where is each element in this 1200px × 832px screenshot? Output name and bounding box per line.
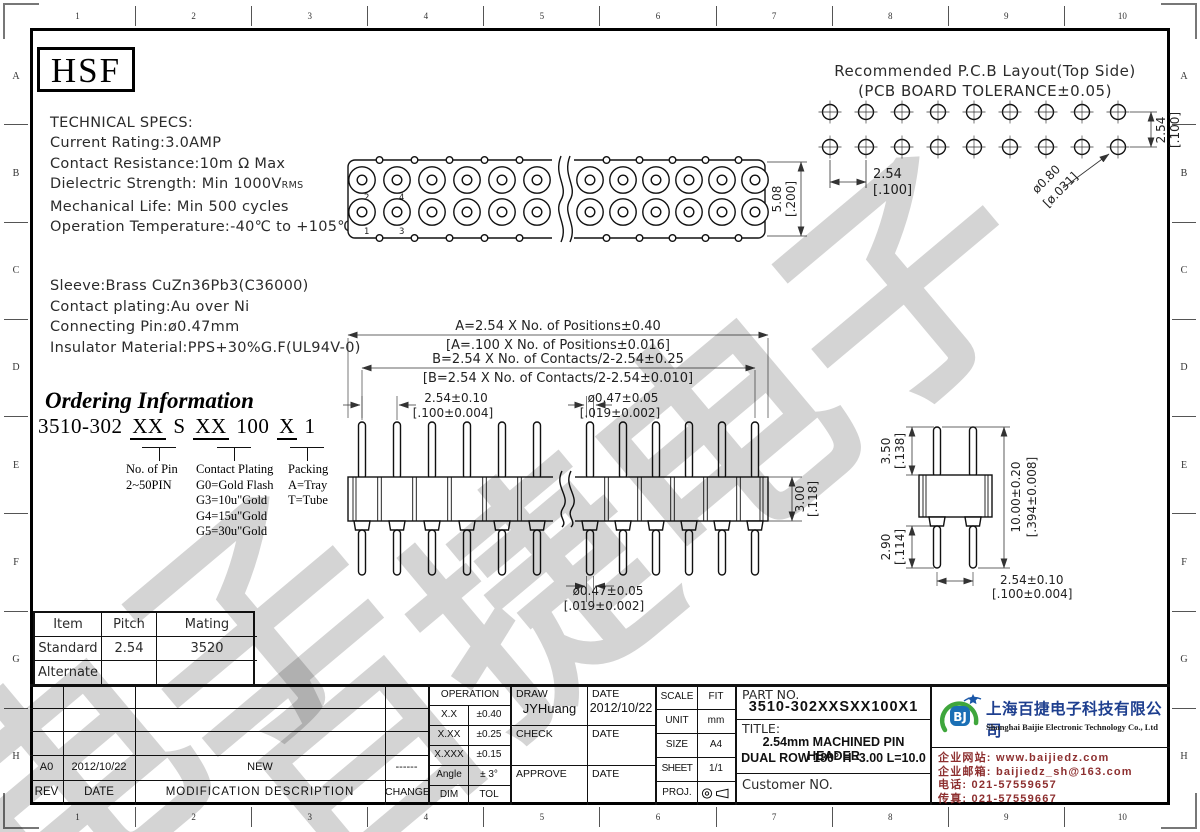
code-suffix: 1 bbox=[305, 414, 316, 438]
grid-line bbox=[512, 725, 655, 726]
bottom-pin-in: [.114] bbox=[893, 529, 907, 565]
note-line: G4=15u"Gold bbox=[196, 509, 274, 525]
ruler-row: H bbox=[4, 709, 28, 805]
ruler-col: 1 bbox=[20, 6, 136, 26]
body-height-mm: 3.00 bbox=[793, 486, 807, 513]
pcb-row-in: [.100] bbox=[1168, 112, 1182, 148]
material-line: Contact plating:Au over Ni bbox=[50, 297, 361, 318]
rev-label: REV bbox=[30, 780, 63, 805]
sv-pitch-in: [.100±0.004] bbox=[992, 587, 1073, 600]
ruler-col: 7 bbox=[717, 807, 833, 827]
grid-line bbox=[30, 708, 428, 709]
mating-cell bbox=[157, 661, 257, 684]
body-height-in: [.118] bbox=[806, 481, 820, 517]
approve-label: APPROVE bbox=[516, 768, 567, 780]
tol-value: ± 3° bbox=[468, 765, 510, 785]
ordering-title: Ordering Information bbox=[45, 388, 254, 414]
grid-line bbox=[932, 747, 1170, 748]
code-s: S bbox=[173, 414, 185, 438]
packing-note: Packing A=Tray T=Tube bbox=[288, 462, 328, 509]
connector-line bbox=[234, 447, 235, 461]
technical-specs: TECHNICAL SPECS: Current Rating:3.0AMP C… bbox=[50, 113, 354, 237]
unit-value: mm bbox=[697, 709, 735, 733]
materials-specs: Sleeve:Brass CuZn36Pb3(C36000) Contact p… bbox=[50, 276, 361, 358]
ruler-col: 6 bbox=[600, 6, 716, 26]
pin-number-4: 4 bbox=[399, 193, 404, 203]
code-prefix: 3510-302 bbox=[38, 414, 123, 438]
grid-line bbox=[737, 719, 930, 720]
ruler-row: F bbox=[4, 514, 28, 611]
tol-value: ±0.25 bbox=[468, 725, 510, 745]
mating-table: Item Pitch Mating Standard 2.54 3520 Alt… bbox=[33, 611, 255, 686]
top-pin-in: [.138] bbox=[893, 433, 907, 469]
sheet-label: SHEET bbox=[657, 757, 697, 781]
note-line: A=Tray bbox=[288, 478, 328, 494]
pin-dia-mm: ø0.47±0.05 bbox=[573, 584, 644, 598]
ruler-col: 7 bbox=[717, 6, 833, 26]
proj-label: PROJ. bbox=[657, 781, 697, 805]
change-label: CHANGE bbox=[385, 780, 428, 805]
pin-number-2: 2 bbox=[364, 193, 369, 203]
material-line: Insulator Material:PPS+30%G.F(UL94V-0) bbox=[50, 338, 361, 359]
note-title: Contact Plating bbox=[196, 462, 274, 478]
ruler-col: 4 bbox=[368, 6, 484, 26]
mating-cell: Standard bbox=[35, 637, 102, 661]
date-label: DATE bbox=[592, 688, 619, 700]
dim-a-in: [A=.100 X No. of Positions±0.016] bbox=[446, 338, 670, 353]
hsf-logo: HSF bbox=[37, 47, 135, 92]
specs-title: TECHNICAL SPECS: bbox=[50, 113, 354, 133]
pin-dia-in: [.019±0.002] bbox=[564, 599, 645, 613]
size-label: SIZE bbox=[657, 733, 697, 757]
ruler-row: C bbox=[4, 223, 28, 320]
pcb-pitch-mm: 2.54 bbox=[873, 167, 902, 182]
tol-value: ±0.40 bbox=[468, 705, 510, 725]
grid-line bbox=[512, 765, 655, 766]
side-view-drawing: 3.50 [.138] 2.90 [.114] 10.00±0.20 [.394… bbox=[880, 400, 1180, 600]
draw-name: JYHuang bbox=[512, 701, 587, 716]
pcb-layout-title: Recommended P.C.B Layout(Top Side) bbox=[790, 62, 1180, 80]
ruler-bottom: 1 2 3 4 5 6 7 8 9 10 bbox=[20, 807, 1180, 827]
projection-symbol-icon bbox=[700, 787, 732, 800]
date-label: DATE bbox=[592, 728, 619, 740]
ruler-col: 4 bbox=[368, 807, 484, 827]
ruler-col: 8 bbox=[833, 6, 949, 26]
ruler-col: 3 bbox=[252, 807, 368, 827]
ruler-col: 1 bbox=[20, 807, 136, 827]
pitch-mm: 2.54±0.10 bbox=[424, 391, 488, 405]
code-mid: 100 bbox=[236, 414, 269, 438]
mating-cell: 2.54 bbox=[102, 637, 157, 661]
material-line: Sleeve:Brass CuZn36Pb3(C36000) bbox=[50, 276, 361, 297]
customer-no-label: Customer NO. bbox=[742, 778, 833, 793]
note-line: G0=Gold Flash bbox=[196, 478, 274, 494]
ruler-col: 5 bbox=[484, 6, 600, 26]
code-packing: X bbox=[277, 414, 297, 440]
tol-label: X.XX bbox=[430, 725, 468, 745]
ruler-col: 6 bbox=[600, 807, 716, 827]
spec-line: Mechanical Life: Min 500 cycles bbox=[50, 197, 354, 217]
overall-height-in: [.394±0.008] bbox=[1025, 457, 1039, 538]
ruler-row: E bbox=[4, 417, 28, 514]
ruler-col: 10 bbox=[1065, 6, 1180, 26]
ruler-col: 2 bbox=[136, 807, 252, 827]
company-fax: 传真: 021-57559667 bbox=[938, 793, 1133, 807]
tol-label: X.XXX bbox=[430, 745, 468, 765]
note-title: Packing bbox=[288, 462, 328, 478]
grid-line bbox=[737, 773, 930, 774]
title-block-top-border bbox=[30, 684, 1170, 687]
pins-top bbox=[359, 422, 759, 479]
material-line: Connecting Pin:ø0.47mm bbox=[50, 317, 361, 338]
rev-date-value: 2012/10/22 bbox=[63, 755, 135, 780]
mating-cell: Alternate bbox=[35, 661, 102, 684]
spec-line: Current Rating:3.0AMP bbox=[50, 133, 354, 153]
company-contact: 企业网站: www.baijiedz.com 企业邮箱: baijiedz_sh… bbox=[938, 752, 1133, 806]
ruler-col: 5 bbox=[484, 807, 600, 827]
row-span-mm: 5.08 bbox=[770, 186, 784, 213]
pin-number-3: 3 bbox=[399, 227, 404, 237]
top-view-drawing: 2 4 1 3 5.08 [.200] bbox=[340, 150, 820, 250]
pcb-holes-row2 bbox=[819, 136, 1130, 159]
top-pin-mm: 3.50 bbox=[880, 438, 893, 465]
ruler-row: B bbox=[4, 125, 28, 222]
rev-value: A0 bbox=[30, 755, 63, 780]
note-line: T=Tube bbox=[288, 493, 328, 509]
pin-count-note: No. of Pin 2~50PIN bbox=[126, 462, 178, 493]
draw-label: DRAW bbox=[516, 688, 548, 700]
grid-line bbox=[30, 731, 428, 732]
code-pins: XX bbox=[130, 414, 165, 440]
part-code: 3510-302 XX S XX 100 X 1 bbox=[38, 414, 316, 439]
spec-line: Dielectric Strength: Min 1000VRMS bbox=[50, 174, 354, 196]
company-email: 企业邮箱: baijiedz_sh@163.com bbox=[938, 766, 1133, 780]
date-label: DATE bbox=[63, 780, 135, 805]
company-logo-icon: BJ bbox=[936, 692, 984, 742]
sv-pitch-mm: 2.54±0.10 bbox=[1000, 573, 1064, 587]
mating-header: Item bbox=[35, 613, 102, 637]
part-no-value: 3510-302XXSXX100X1 bbox=[737, 699, 930, 715]
mating-cell bbox=[102, 661, 157, 684]
drawing-sheet: 1 2 3 4 5 6 7 8 9 10 1 2 3 4 5 6 7 8 9 1… bbox=[0, 0, 1200, 832]
operation-header: OPERATION bbox=[430, 685, 510, 705]
scale-label: SCALE bbox=[657, 685, 697, 709]
mating-cell: 3520 bbox=[157, 637, 257, 661]
spec-line: Contact Resistance:10m Ω Max bbox=[50, 154, 354, 174]
ruler-top: 1 2 3 4 5 6 7 8 9 10 bbox=[20, 6, 1180, 26]
front-view-drawing: A=2.54 X No. of Positions±0.40 [A=.100 X… bbox=[340, 318, 820, 613]
code-plating: XX bbox=[193, 414, 228, 440]
dim-label: DIM bbox=[430, 785, 468, 805]
mating-header: Pitch bbox=[102, 613, 157, 637]
rev-change-value: ------ bbox=[385, 755, 428, 780]
ruler-col: 2 bbox=[136, 6, 252, 26]
company-tel: 电话: 021-57559657 bbox=[938, 779, 1133, 793]
company-name-en: Shanghai Baijie Electronic Technology Co… bbox=[986, 722, 1186, 732]
spec-line: Operation Temperature:-40℃ to +105℃ bbox=[50, 217, 354, 237]
plating-note: Contact Plating G0=Gold Flash G3=10u"Gol… bbox=[196, 462, 274, 540]
dia-in: [.019±0.002] bbox=[580, 406, 661, 420]
ruler-row: C bbox=[1172, 223, 1196, 320]
grid-line bbox=[930, 685, 932, 805]
overall-height-mm: 10.00±0.20 bbox=[1009, 461, 1023, 532]
tol-label: X.X bbox=[430, 705, 468, 725]
tol-value: ±0.15 bbox=[468, 745, 510, 765]
ruler-row: A bbox=[4, 28, 28, 125]
row-span-in: [.200] bbox=[784, 181, 798, 217]
rev-description-value: NEW bbox=[135, 755, 385, 780]
dim-b-in: [B=2.54 X No. of Contacts/2-2.54±0.010] bbox=[423, 371, 693, 386]
date-label: DATE bbox=[592, 768, 619, 780]
title-label: TITLE: bbox=[742, 721, 780, 736]
pitch-in: [.100±0.004] bbox=[413, 406, 494, 420]
note-line: 2~50PIN bbox=[126, 478, 178, 494]
note-line: G3=10u"Gold bbox=[196, 493, 274, 509]
company-name-cn: 上海百捷电子科技有限公司 bbox=[986, 697, 1170, 741]
ruler-row: G bbox=[1172, 612, 1196, 709]
pcb-pitch-in: [.100] bbox=[873, 183, 912, 198]
ruler-col: 8 bbox=[833, 807, 949, 827]
tol-header-label: TOL bbox=[468, 785, 510, 805]
ruler-col: 9 bbox=[949, 6, 1065, 26]
tol-label: Angle bbox=[430, 765, 468, 785]
bottom-pin-mm: 2.90 bbox=[880, 534, 893, 561]
ruler-row: D bbox=[4, 320, 28, 417]
ruler-col: 10 bbox=[1065, 807, 1180, 827]
pcb-holes-row1 bbox=[819, 101, 1130, 124]
scale-value: FIT bbox=[697, 685, 735, 709]
ruler-row: G bbox=[4, 612, 28, 709]
check-label: CHECK bbox=[516, 728, 553, 740]
dim-a-mm: A=2.54 X No. of Positions±0.40 bbox=[455, 319, 661, 334]
logo-letters: BJ bbox=[953, 710, 967, 724]
size-value: A4 bbox=[697, 733, 735, 757]
mating-header: Mating bbox=[157, 613, 257, 637]
title-line2: DUAL ROW 180° H=3.00 L=10.0 bbox=[737, 751, 930, 765]
ruler-col: 3 bbox=[252, 6, 368, 26]
company-website: 企业网站: www.baijiedz.com bbox=[938, 752, 1133, 766]
unit-label: UNIT bbox=[657, 709, 697, 733]
description-label: MODIFICATION DESCRIPTION bbox=[135, 780, 385, 805]
pin-number-1: 1 bbox=[364, 227, 369, 237]
connector-line bbox=[307, 447, 308, 461]
pins-bottom bbox=[354, 521, 763, 575]
note-line: G5=30u"Gold bbox=[196, 524, 274, 540]
dim-b-mm: B=2.54 X No. of Contacts/2-2.54±0.25 bbox=[432, 352, 684, 367]
pcb-layout-drawing: 2.54 [.100] 2.54 [.100] ø0.80 [ø.031] bbox=[805, 90, 1185, 220]
dia-mm: ø0.47±0.05 bbox=[588, 391, 659, 405]
pcb-row-mm: 2.54 bbox=[1154, 117, 1168, 144]
connector-line bbox=[159, 447, 160, 461]
draw-date: 2012/10/22 bbox=[587, 701, 655, 715]
ruler-col: 9 bbox=[949, 807, 1065, 827]
note-title: No. of Pin bbox=[126, 462, 178, 478]
ruler-left: A B C D E F G H bbox=[4, 28, 28, 805]
sheet-value: 1/1 bbox=[697, 757, 735, 781]
